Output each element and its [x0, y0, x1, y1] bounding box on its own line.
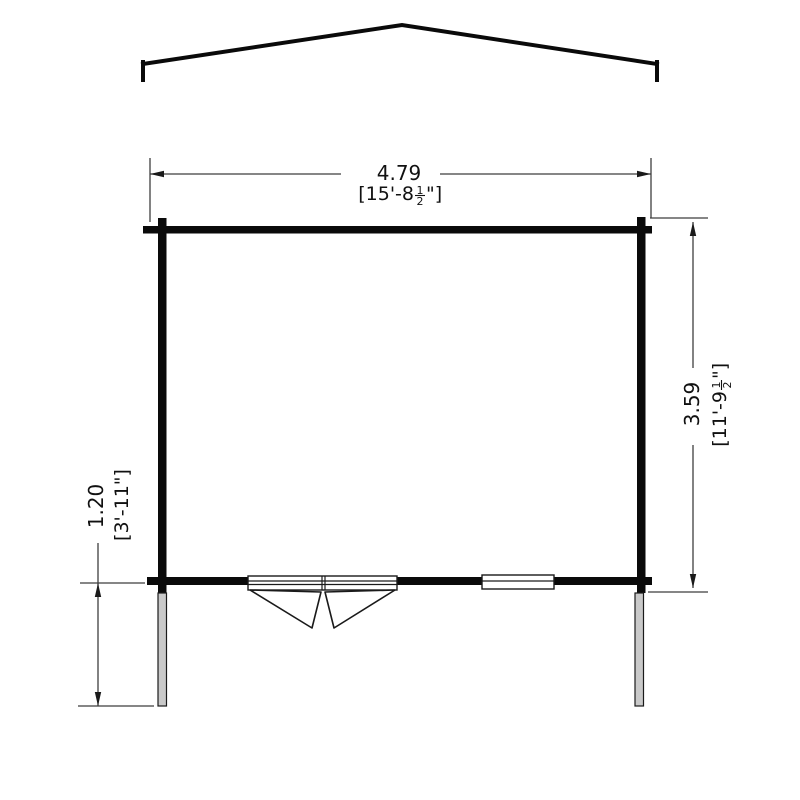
- floor-plan-drawing: 4.79 [15'-8 1 2 "] 3.59 [11'-9 1 2 "]: [0, 0, 800, 800]
- width-imperial-prefix: [15'-8: [358, 183, 414, 205]
- width-imperial-suffix: "]: [426, 183, 442, 205]
- door-leaf-right-swing: [325, 590, 395, 628]
- depth-arrow-top: [690, 222, 696, 236]
- building-walls: [143, 217, 652, 593]
- depth-imperial-label: [11'-9 1 2 "]: [709, 363, 734, 447]
- width-imperial-label: [15'-8 1 2 "]: [358, 183, 442, 208]
- double-door: [248, 576, 397, 628]
- canopy-metric-label: 1.20: [84, 484, 108, 529]
- right-canopy-post: [635, 593, 644, 706]
- front-wall-right-segment: [554, 577, 652, 585]
- front-wall-left-segment: [147, 577, 248, 585]
- dimension-width: 4.79 [15'-8 1 2 "]: [150, 158, 651, 222]
- window-frame: [482, 575, 554, 589]
- left-canopy-post: [158, 593, 167, 706]
- rear-wall: [143, 226, 652, 234]
- roof-ridge-lines: [143, 25, 657, 64]
- front-window: [482, 575, 554, 589]
- depth-imperial-prefix: [11'-9: [709, 391, 731, 447]
- front-wall-middle-segment: [397, 577, 482, 585]
- width-arrow-right: [637, 171, 651, 177]
- right-wall: [637, 217, 646, 593]
- depth-imperial-suffix: "]: [709, 363, 731, 379]
- width-metric-label: 4.79: [377, 161, 422, 185]
- width-fraction-denominator: 2: [417, 195, 424, 208]
- door-leaf-left-swing: [250, 590, 321, 628]
- canopy-arrow-top: [95, 583, 101, 597]
- dimension-canopy: 1.20 [3'-11"]: [78, 469, 154, 706]
- canopy-arrow-bottom: [95, 692, 101, 706]
- floor-plan-page: 4.79 [15'-8 1 2 "] 3.59 [11'-9 1 2 "]: [0, 0, 800, 800]
- depth-fraction-denominator: 2: [721, 382, 734, 389]
- canopy-posts: [158, 593, 644, 706]
- left-wall: [158, 218, 167, 593]
- roof-outline: [143, 25, 657, 80]
- depth-metric-label: 3.59: [680, 382, 704, 427]
- canopy-imperial-label: [3'-11"]: [111, 469, 133, 541]
- dimension-depth: 3.59 [11'-9 1 2 "]: [648, 218, 734, 592]
- width-arrow-left: [150, 171, 164, 177]
- depth-arrow-bottom: [690, 574, 696, 588]
